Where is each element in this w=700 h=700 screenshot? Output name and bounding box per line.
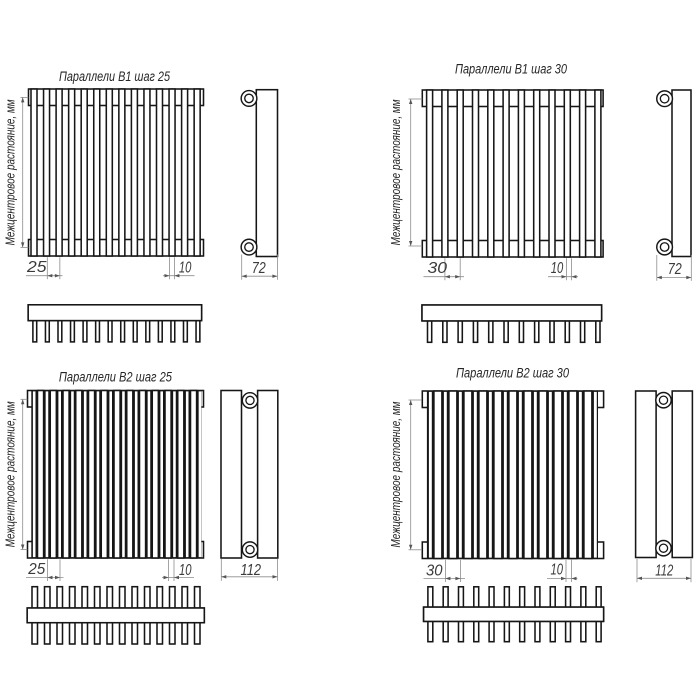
svg-text:Параллели В1 шаг 25: Параллели В1 шаг 25 (59, 69, 170, 84)
svg-text:30: 30 (426, 563, 443, 580)
svg-text:10: 10 (551, 260, 564, 277)
svg-text:Параллели В2 шаг 25: Параллели В2 шаг 25 (59, 370, 172, 385)
svg-text:Межцентровое растояние, мм: Межцентровое растояние, мм (3, 99, 17, 245)
svg-text:Параллели В1 шаг 30: Параллели В1 шаг 30 (455, 61, 567, 76)
svg-text:Межцентровое растояние, мм: Межцентровое растояние, мм (389, 401, 403, 547)
svg-text:72: 72 (252, 260, 266, 277)
svg-text:10: 10 (179, 562, 192, 579)
svg-text:30: 30 (428, 260, 448, 277)
svg-text:Межцентровое растояние, мм: Межцентровое растояние, мм (389, 99, 403, 245)
svg-text:112: 112 (241, 562, 262, 579)
svg-text:25: 25 (27, 561, 45, 578)
svg-text:10: 10 (551, 562, 564, 579)
svg-text:112: 112 (655, 562, 673, 579)
svg-text:25: 25 (26, 259, 47, 276)
svg-text:72: 72 (668, 261, 682, 278)
svg-text:10: 10 (179, 259, 192, 276)
svg-text:Параллели В2 шаг 30: Параллели В2 шаг 30 (456, 366, 569, 381)
svg-text:Межцентровое растояние, мм: Межцентровое растояние, мм (3, 401, 17, 547)
